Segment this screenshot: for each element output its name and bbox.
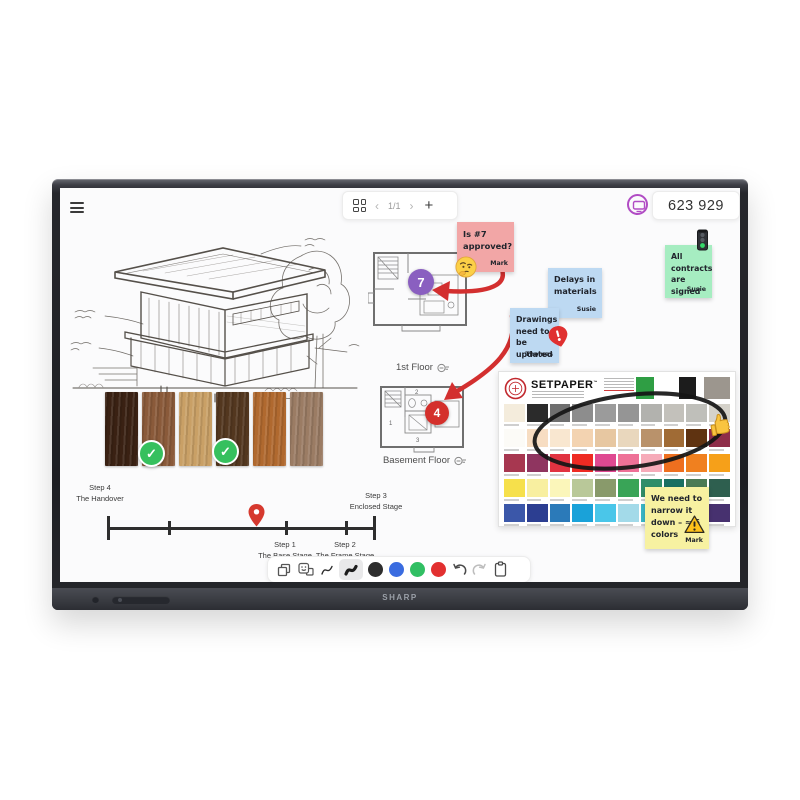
sticky-author: Thomas bbox=[525, 350, 553, 359]
page-controls: ‹ 1/1 › + bbox=[342, 191, 458, 220]
palette-address-lines bbox=[532, 391, 584, 400]
sticky-author: Susie bbox=[577, 305, 596, 314]
sticky-note-drawings[interactable]: Drawings need to be updated Thomas bbox=[510, 308, 559, 363]
palette-swatch bbox=[504, 454, 525, 479]
approved-check-icon: ✓ bbox=[212, 438, 239, 465]
pen-thin-button[interactable] bbox=[320, 559, 334, 580]
palette-swatch bbox=[664, 454, 685, 479]
menu-button[interactable] bbox=[70, 202, 84, 213]
floor-label-first: 1st Floor bbox=[368, 362, 478, 373]
palette-swatch bbox=[504, 479, 525, 504]
cast-icon[interactable] bbox=[627, 194, 648, 215]
session-code-value: 623 929 bbox=[668, 198, 724, 214]
location-pin-icon[interactable] bbox=[248, 504, 265, 527]
palette-swatch bbox=[709, 454, 730, 479]
palette-header-swatch bbox=[679, 377, 696, 399]
palette-swatch bbox=[527, 429, 548, 454]
palette-swatch bbox=[550, 404, 571, 429]
wood-sample[interactable] bbox=[253, 392, 286, 466]
marker-badge-4[interactable]: 4 bbox=[425, 401, 449, 425]
magnifier-icon bbox=[454, 456, 467, 466]
timeline-tick bbox=[285, 521, 288, 535]
palette-swatch bbox=[686, 404, 707, 429]
palette-swatch bbox=[527, 454, 548, 479]
palette-swatch bbox=[686, 429, 707, 454]
palette-swatch bbox=[641, 404, 662, 429]
clipboard-button[interactable] bbox=[493, 559, 508, 580]
undo-button[interactable] bbox=[451, 559, 467, 580]
page-indicator: 1/1 bbox=[388, 201, 401, 211]
palette-swatch bbox=[641, 429, 662, 454]
palette-swatch bbox=[572, 429, 593, 454]
palette-swatch bbox=[572, 454, 593, 479]
palette-swatch bbox=[595, 404, 616, 429]
approved-check-icon: ✓ bbox=[138, 440, 165, 467]
palette-swatch bbox=[709, 504, 730, 529]
sticker-tool-button[interactable] bbox=[297, 559, 315, 580]
palette-swatch bbox=[504, 504, 525, 529]
palette-swatch bbox=[550, 479, 571, 504]
thumbs-up-emoji bbox=[706, 412, 733, 439]
svg-text:3: 3 bbox=[416, 438, 420, 444]
sticky-note-colors[interactable]: We need to narrow it down – ≈ 6 colors M… bbox=[645, 487, 709, 549]
palette-title: SETPAPER™ bbox=[531, 379, 598, 391]
palette-header-swatch bbox=[704, 377, 730, 399]
basement-floor-plan[interactable]: 1 2 3 bbox=[376, 383, 468, 453]
warning-emoji bbox=[684, 515, 705, 534]
product-photo: ‹ 1/1 › + 623 929 bbox=[0, 0, 800, 800]
palette-swatch bbox=[504, 404, 525, 429]
pages-overview-button[interactable] bbox=[353, 199, 366, 212]
palette-swatch bbox=[550, 429, 571, 454]
add-page-button[interactable]: + bbox=[425, 198, 434, 213]
sticky-author: Mark bbox=[490, 259, 508, 268]
prev-page-button[interactable]: ‹ bbox=[375, 200, 379, 212]
pen-thick-button[interactable] bbox=[339, 559, 363, 580]
monitor-chin: SHARP bbox=[52, 588, 748, 610]
floor-label-basement: Basement Floor bbox=[360, 455, 490, 466]
palette-info-lines bbox=[604, 378, 634, 392]
palette-swatch bbox=[527, 404, 548, 429]
palette-swatch bbox=[618, 429, 639, 454]
wood-sample[interactable] bbox=[105, 392, 138, 466]
svg-text:1: 1 bbox=[389, 421, 393, 427]
timeline-endcap bbox=[107, 516, 110, 540]
palette-swatch bbox=[527, 479, 548, 504]
duplicate-tool-button[interactable] bbox=[276, 559, 292, 580]
timeline-step: Step 4The Handover bbox=[76, 483, 124, 504]
setpaper-stamp-icon bbox=[504, 377, 527, 400]
sticky-author: Susie bbox=[687, 285, 706, 294]
session-code[interactable]: 623 929 bbox=[652, 191, 740, 220]
redo-button[interactable] bbox=[472, 559, 488, 580]
palette-swatch bbox=[618, 479, 639, 504]
timeline-tick bbox=[345, 521, 348, 535]
brand-logo: SHARP bbox=[52, 593, 748, 602]
wood-sample[interactable] bbox=[179, 392, 212, 466]
palette-swatch bbox=[572, 504, 593, 529]
magnifier-icon bbox=[437, 363, 450, 373]
timeline-endcap bbox=[373, 516, 376, 540]
palette-swatch bbox=[550, 454, 571, 479]
palette-swatch bbox=[618, 454, 639, 479]
sharp-display: ‹ 1/1 › + 623 929 bbox=[52, 179, 748, 610]
color-dot[interactable] bbox=[431, 562, 446, 577]
house-sketch[interactable] bbox=[65, 226, 365, 404]
palette-swatch bbox=[595, 504, 616, 529]
drawing-toolbar bbox=[267, 556, 531, 582]
color-dot[interactable] bbox=[410, 562, 425, 577]
palette-swatch bbox=[595, 454, 616, 479]
thinking-face-emoji bbox=[455, 256, 477, 278]
palette-swatch bbox=[595, 429, 616, 454]
project-timeline[interactable]: Step 1The Base Stage Step 2The Frame Sta… bbox=[100, 483, 445, 561]
palette-swatch bbox=[504, 429, 525, 454]
palette-swatch bbox=[618, 504, 639, 529]
alert-icon bbox=[547, 324, 571, 349]
wood-sample[interactable] bbox=[290, 392, 323, 466]
timeline-line bbox=[107, 527, 374, 530]
sticky-note-approval[interactable]: Is #7 approved? Mark bbox=[457, 222, 514, 272]
palette-swatch bbox=[550, 504, 571, 529]
palette-header-swatch bbox=[636, 377, 654, 399]
sticky-author: Mark bbox=[685, 536, 703, 545]
palette-swatch bbox=[572, 404, 593, 429]
palette-swatch bbox=[641, 454, 662, 479]
color-dot[interactable] bbox=[368, 562, 383, 577]
timeline-tick bbox=[168, 521, 171, 535]
color-dot[interactable] bbox=[389, 562, 404, 577]
color-dots bbox=[368, 562, 446, 577]
palette-swatch bbox=[527, 504, 548, 529]
whiteboard-screen: ‹ 1/1 › + 623 929 bbox=[60, 188, 740, 582]
next-page-button[interactable]: › bbox=[410, 200, 414, 212]
palette-swatch bbox=[686, 454, 707, 479]
sticky-note-contracts[interactable]: All contracts are signed Susie bbox=[665, 245, 712, 298]
palette-swatch bbox=[572, 479, 593, 504]
timeline-step: Step 3Enclosed Stage bbox=[350, 491, 403, 512]
palette-swatch bbox=[664, 429, 685, 454]
palette-swatch bbox=[709, 479, 730, 504]
palette-swatch bbox=[618, 404, 639, 429]
marker-badge-7[interactable]: 7 bbox=[408, 269, 434, 295]
traffic-light-emoji bbox=[696, 229, 709, 252]
palette-swatch bbox=[595, 479, 616, 504]
palette-swatch bbox=[664, 404, 685, 429]
